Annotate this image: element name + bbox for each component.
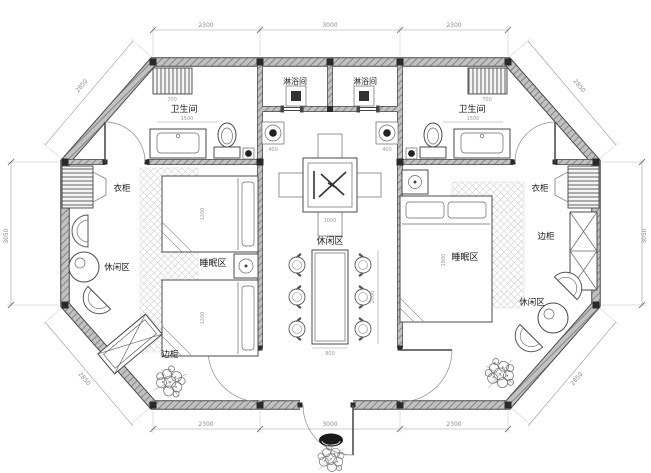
dim-top-left: 2300 xyxy=(198,22,213,29)
dim-bottom-left: 2300 xyxy=(198,421,213,428)
side-cabinet-right-label: 边柜 xyxy=(537,231,555,242)
washbasin-right xyxy=(376,122,398,144)
dim-top-right: 2300 xyxy=(446,22,461,29)
bed-left-1: 1200 xyxy=(162,176,258,252)
plant-left xyxy=(152,363,188,399)
central-hall: 400 400 1000 休闲区 xyxy=(262,122,398,472)
tea-seat-top xyxy=(318,134,342,158)
dim-bed1: 1200 xyxy=(200,208,206,221)
towel-radiator-right xyxy=(468,68,507,94)
dim-basin-right: 400 xyxy=(382,147,392,153)
shower-right-label: 淋浴间 xyxy=(353,76,377,86)
dim-left: 3050 xyxy=(3,228,10,243)
dim-bath-left: 1500 xyxy=(181,116,194,122)
dim-bath-right: 1500 xyxy=(467,116,480,122)
dim-bed-right: 1800 xyxy=(441,254,447,267)
dim-radiator-right: 700 xyxy=(482,97,492,103)
round-table-left xyxy=(69,252,99,282)
entrance-plant xyxy=(318,434,344,472)
armchair-left-2 xyxy=(77,286,111,320)
dim-radiator-left: 700 xyxy=(167,97,177,103)
dim-dining-width: 800 xyxy=(325,351,335,357)
towel-radiator-left xyxy=(153,68,192,94)
armchair-right-2 xyxy=(509,324,543,358)
dim-diag-tl: 2850 xyxy=(74,78,89,94)
bedroom-right: 1800 睡眠区 衣柜 边柜 休闲区 xyxy=(400,166,599,390)
dining-group: 800 2000 xyxy=(289,250,378,357)
dim-basin-left: 400 xyxy=(268,147,278,153)
wardrobe-left-label: 衣柜 xyxy=(113,183,131,194)
toilet-right xyxy=(420,123,446,158)
dim-bottom-center: 3000 xyxy=(322,421,337,428)
tea-table-group: 1000 xyxy=(279,134,381,236)
dim-diag-bl: 2850 xyxy=(77,371,92,387)
toilet-left xyxy=(214,123,240,158)
bedroom-left: 1200 1200 睡眠区 衣柜 休闲区 xyxy=(62,166,258,399)
tea-seat-right xyxy=(357,173,381,197)
wardrobe-right xyxy=(555,166,599,208)
armchair-left-1 xyxy=(72,215,88,247)
dim-bottom-right: 2300 xyxy=(446,421,461,428)
leisure-left-label: 休闲区 xyxy=(104,262,130,273)
floor-plan-canvas: 2300 3000 2300 2300 3000 2300 3050 3050 … xyxy=(0,0,651,473)
shower-right: 淋浴间 xyxy=(353,76,377,106)
leisure-left-group: 休闲区 xyxy=(69,215,130,320)
shower-left: 淋浴间 xyxy=(283,76,307,106)
wardrobe-left xyxy=(62,166,106,208)
dim-top-center: 3000 xyxy=(322,22,337,29)
side-cabinet-left-label: 边柜 xyxy=(161,349,179,360)
nightstand-left xyxy=(234,254,258,278)
leisure-right-label: 休闲区 xyxy=(519,297,545,308)
washbasin-left xyxy=(262,122,284,144)
floor-drain-left xyxy=(243,148,254,159)
bathroom-left: 卫生间 1500 700 xyxy=(150,68,254,159)
plant-right xyxy=(483,356,517,391)
floor-plan-page: 2300 3000 2300 2300 3000 2300 3050 3050 … xyxy=(0,0,651,473)
bathroom-right: 卫生间 1500 700 xyxy=(406,68,510,159)
bathroom-left-label: 卫生间 xyxy=(170,103,197,115)
floor-drain-right xyxy=(406,148,417,159)
sleeping-right-label: 睡眠区 xyxy=(451,251,478,263)
dining-table xyxy=(312,250,348,344)
wardrobe-right-label: 衣柜 xyxy=(531,183,549,194)
dim-right: 3050 xyxy=(641,228,648,243)
tea-seat-left xyxy=(279,173,303,197)
dim-tea-table: 1000 xyxy=(324,218,337,224)
dim-bed2: 1200 xyxy=(200,312,206,325)
dim-diag-br: 2850 xyxy=(569,371,584,387)
dim-diag-tr: 2850 xyxy=(572,78,587,94)
sleeping-left-label: 睡眠区 xyxy=(199,257,226,269)
dim-dining-length: 2000 xyxy=(370,291,376,304)
bathroom-right-label: 卫生间 xyxy=(458,103,485,115)
leisure-center-label: 休闲区 xyxy=(316,235,343,247)
shower-left-label: 淋浴间 xyxy=(283,76,307,86)
tea-seat-bottom xyxy=(318,212,342,236)
nightstand-right xyxy=(402,170,428,194)
bed-left-2: 1200 xyxy=(162,280,258,356)
